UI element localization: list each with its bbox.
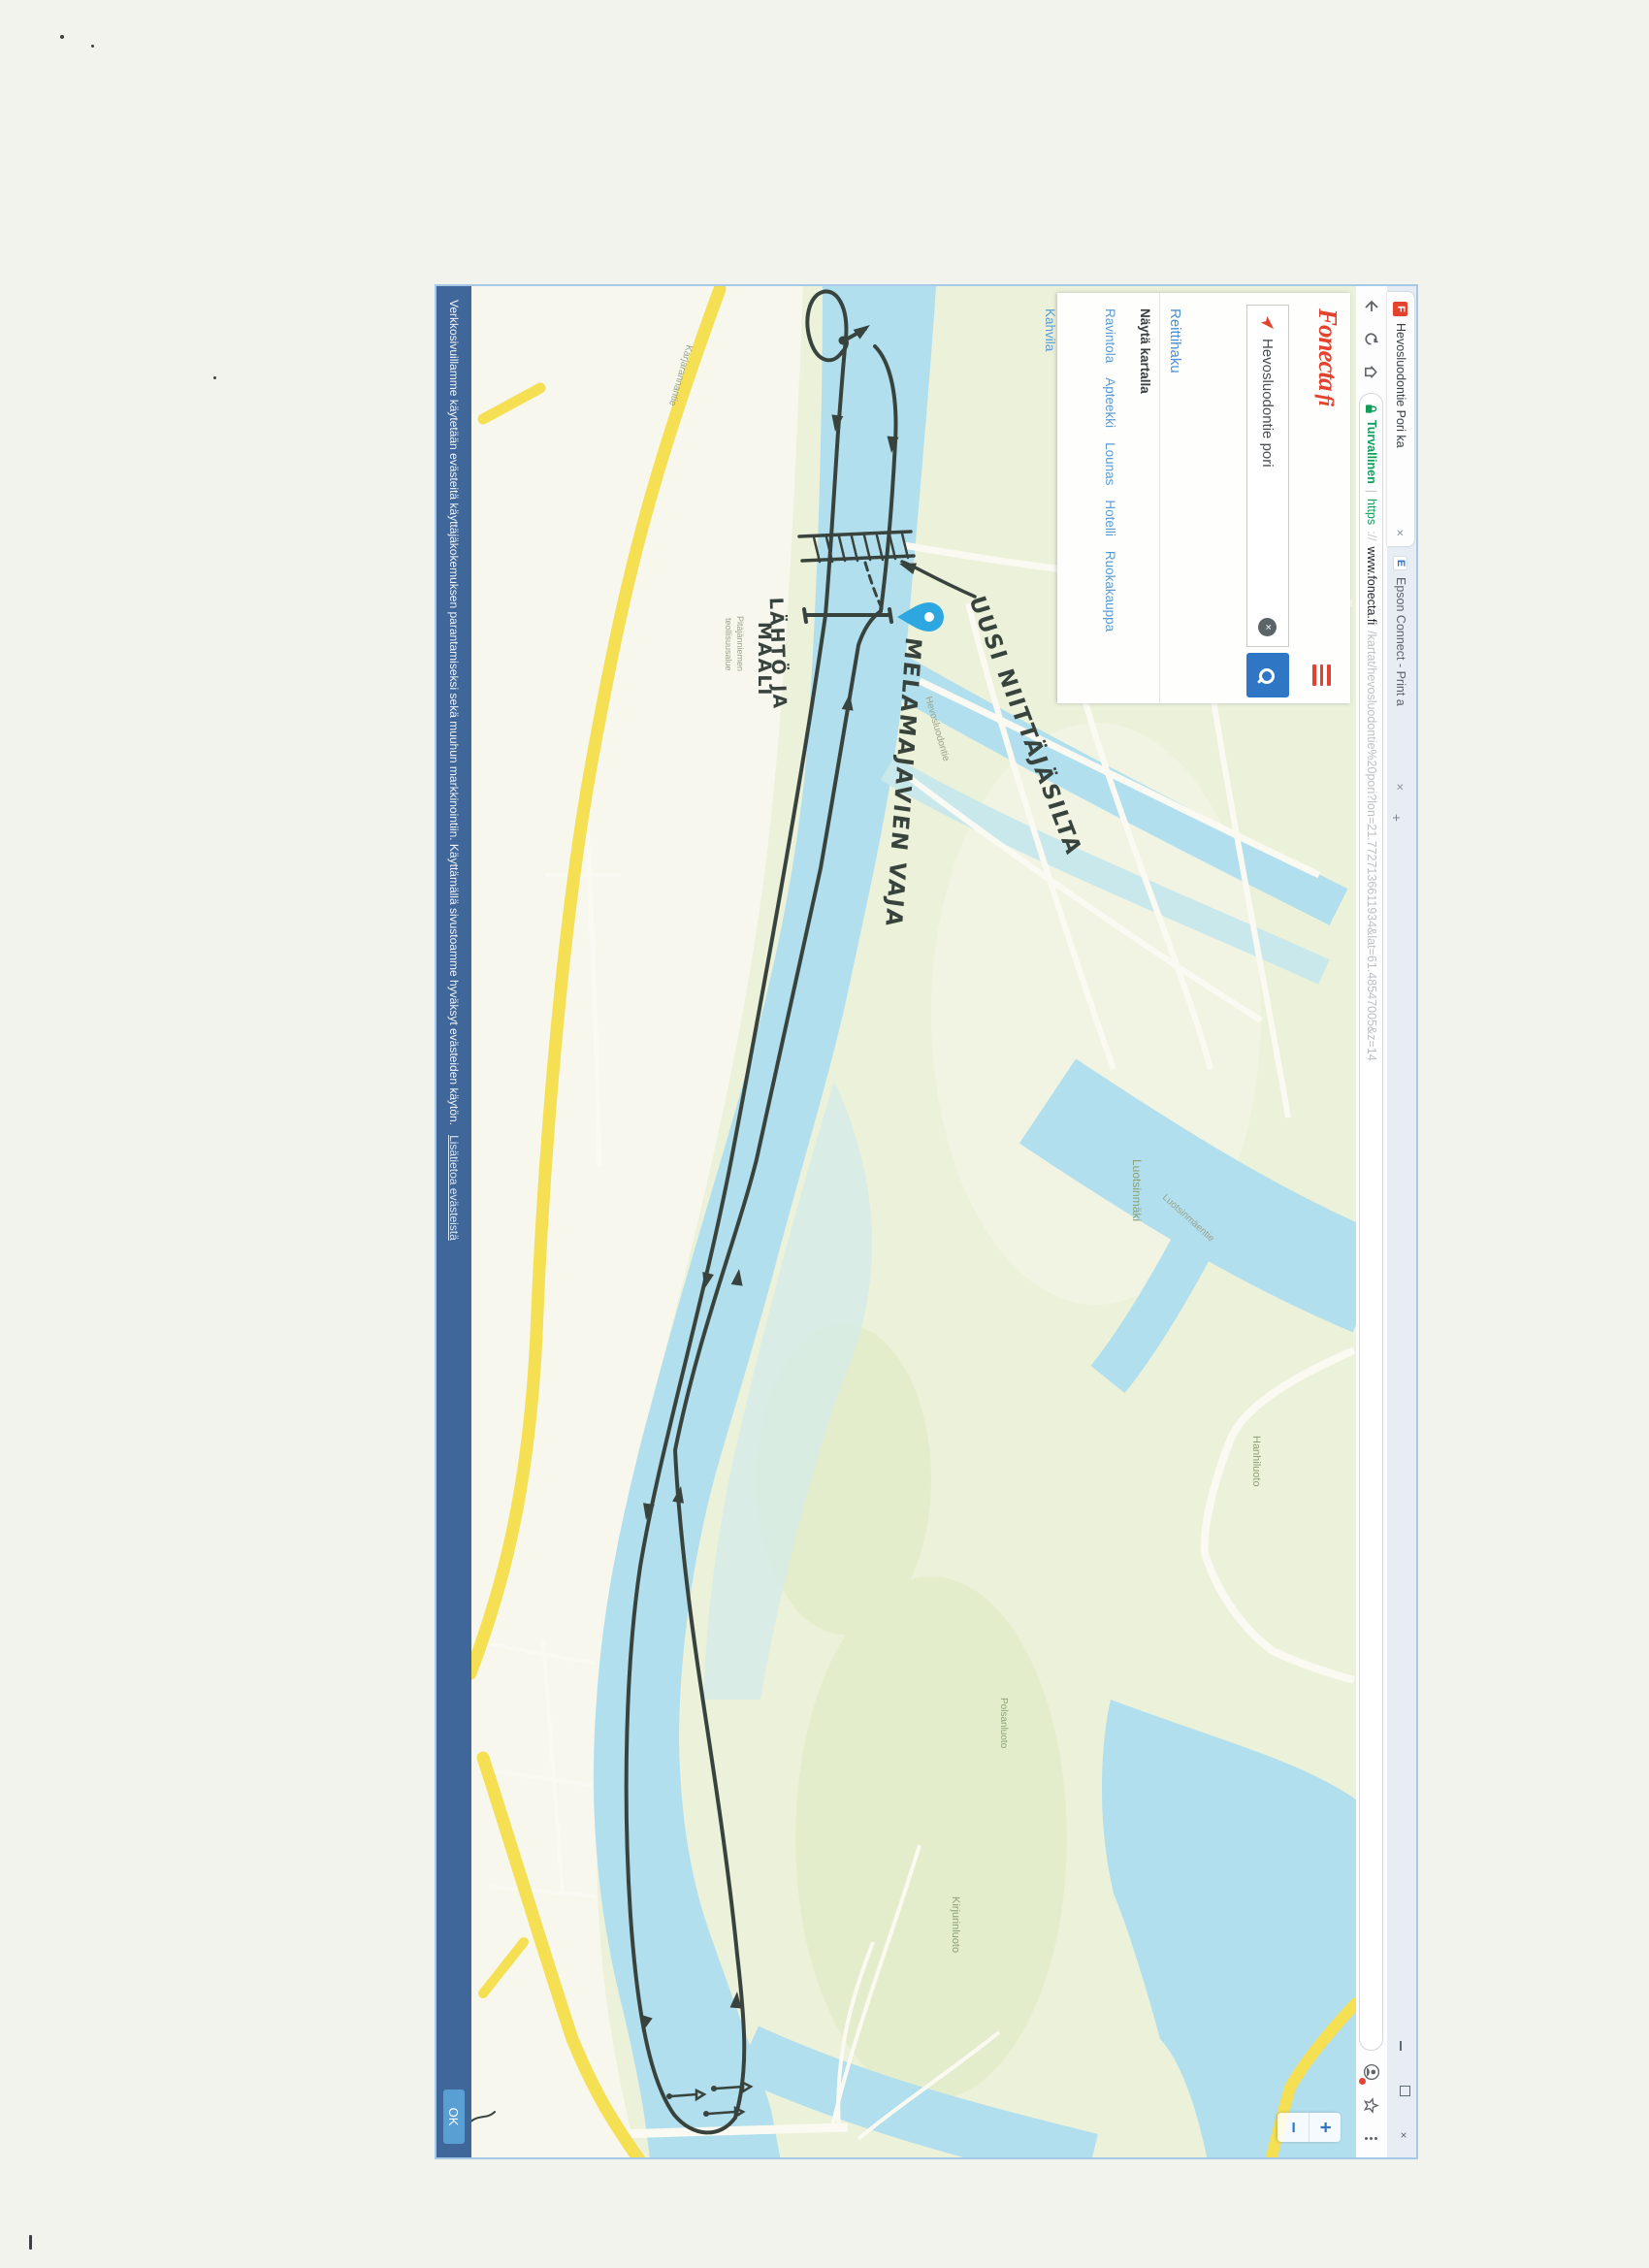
category-link[interactable]: Apteekki <box>1094 377 1125 428</box>
location-arrow-icon <box>1261 315 1276 330</box>
handwriting-start-finish: MAALI <box>754 622 775 697</box>
home-icon[interactable] <box>1360 360 1383 383</box>
epson-favicon-icon: E <box>1394 556 1408 570</box>
minimize-button[interactable] <box>1397 2024 1410 2068</box>
back-icon[interactable] <box>1360 294 1383 317</box>
tab-close-icon[interactable]: × <box>1395 783 1407 791</box>
category-links: Ravintola Apteekki Lounas Hotelli Ruokak… <box>1034 308 1125 694</box>
category-link[interactable]: Kahvila <box>1034 308 1065 351</box>
zoom-out-button[interactable]: − <box>1277 2113 1309 2142</box>
search-value: Hevosluodontie pori <box>1260 339 1277 609</box>
url-domain: www.fonecta.fi <box>1365 547 1378 626</box>
url-scheme: https <box>1365 499 1378 525</box>
url-prefix: :// <box>1365 531 1378 540</box>
security-label: Turvallinen <box>1365 420 1378 484</box>
route-search-link[interactable]: Reittihaku <box>1167 308 1183 373</box>
category-link[interactable]: Hotelli <box>1094 500 1125 536</box>
address-bar[interactable]: Turvallinen | https://www.fonecta.fi/kar… <box>1360 393 1384 2051</box>
url-path: /kartat/hevosluodontie%20pori?lon=21.772… <box>1365 631 1378 1061</box>
url-separator: | <box>1365 490 1378 493</box>
scan-speck <box>29 2235 32 2250</box>
cookie-text: Verkkosivuillamme käytetään evästeitä kä… <box>447 300 461 1125</box>
sync-error-badge <box>1358 2077 1367 2086</box>
scan-speck <box>91 45 94 48</box>
search-input[interactable]: Hevosluodontie pori × <box>1246 305 1289 647</box>
map-park <box>795 1576 1067 2100</box>
reload-icon[interactable] <box>1360 327 1383 350</box>
tab-strip: F Hevosluodontie Pori ka × E Epson Conne… <box>1387 286 1416 2157</box>
category-link[interactable]: Lounas <box>1094 442 1125 485</box>
search-button[interactable] <box>1246 653 1289 697</box>
window-controls: × <box>1391 2024 1416 2157</box>
fonecta-favicon-icon: F <box>1394 302 1408 316</box>
street-label: Pitäjänniemen <box>735 616 745 671</box>
search-icon <box>1261 668 1276 683</box>
tab-close-icon[interactable]: × <box>1395 529 1407 536</box>
map-zoom-control: + − <box>1277 2113 1341 2142</box>
divider <box>1159 293 1160 703</box>
clear-search-icon[interactable]: × <box>1259 618 1277 636</box>
place-label: Polsanluoto <box>998 1698 1009 1749</box>
category-link[interactable]: Ruokakauppa <box>1094 551 1125 632</box>
profile-icon[interactable] <box>1360 2060 1383 2084</box>
printed-browser-screenshot: F Hevosluodontie Pori ka × E Epson Conne… <box>435 284 1418 2159</box>
place-label: Kirjurinluoto <box>950 1896 961 1953</box>
close-button[interactable]: × <box>1397 2113 1410 2157</box>
show-on-map-heading: Näytä kartalla <box>1138 308 1152 394</box>
menu-icon[interactable] <box>1360 2126 1383 2150</box>
cookie-more-link[interactable]: Lisätietoa evästeistä <box>447 1135 461 1241</box>
cookie-banner: Verkkosivuillamme käytetään evästeitä kä… <box>436 286 471 2157</box>
tab-title: Hevosluodontie Pori ka <box>1394 323 1407 522</box>
cookie-ok-button[interactable]: OK <box>443 2090 465 2144</box>
bookmark-star-icon[interactable] <box>1360 2093 1383 2117</box>
map-page: Karjarannantie Pitäjänniemen teollisuusa… <box>436 286 1356 2157</box>
category-link[interactable]: Ravintola <box>1094 308 1125 363</box>
zoom-in-button[interactable]: + <box>1309 2113 1341 2142</box>
tab-title: Epson Connect - Print a <box>1394 577 1407 776</box>
tab-fonecta[interactable]: F Hevosluodontie Pori ka × <box>1387 292 1414 546</box>
browser-toolbar: Turvallinen | https://www.fonecta.fi/kar… <box>1355 286 1387 2157</box>
street-label: teollisuusalue <box>724 618 733 671</box>
lock-icon <box>1366 404 1378 414</box>
tab-epson[interactable]: E Epson Connect - Print a × <box>1387 546 1414 800</box>
place-label: Hanhiluoto <box>1250 1436 1262 1487</box>
new-tab-button[interactable]: + <box>1387 806 1405 829</box>
restore-button[interactable] <box>1397 2068 1410 2113</box>
place-label: Luotsinmäki <box>1130 1159 1144 1221</box>
scan-speck <box>60 35 64 39</box>
fonecta-logo[interactable]: Fonectafi <box>1312 308 1342 405</box>
hamburger-menu-icon[interactable] <box>1313 664 1332 686</box>
scan-speck <box>213 376 216 379</box>
map-pond <box>1217 2000 1276 2093</box>
fonecta-search-panel: Fonectafi Hevosluodontie pori × Reittiha… <box>1057 293 1350 703</box>
